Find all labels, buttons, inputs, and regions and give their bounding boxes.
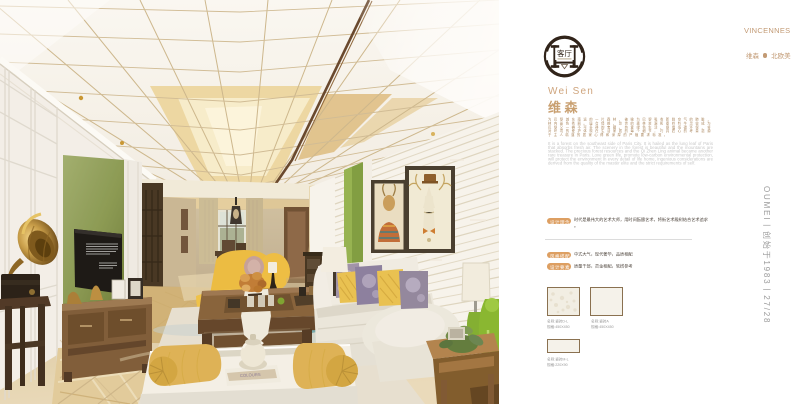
svg-text:客厅: 客厅	[557, 48, 572, 58]
